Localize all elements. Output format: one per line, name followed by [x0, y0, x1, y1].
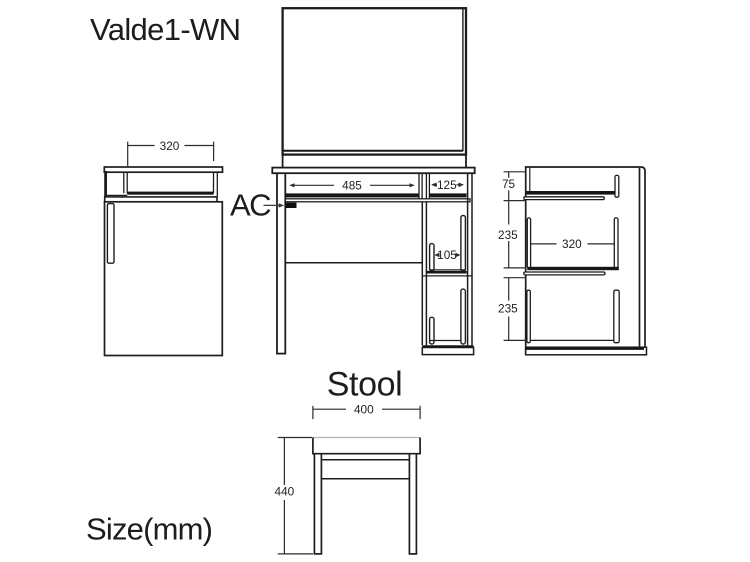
svg-text:125: 125	[437, 178, 457, 192]
svg-text:235: 235	[498, 302, 518, 316]
svg-text:400: 400	[354, 402, 374, 416]
svg-text:320: 320	[562, 237, 582, 251]
svg-text:440: 440	[275, 485, 295, 499]
svg-text:Size(mm): Size(mm)	[86, 512, 212, 547]
svg-text:235: 235	[498, 228, 518, 242]
svg-text:75: 75	[502, 177, 516, 191]
svg-text:320: 320	[160, 139, 180, 153]
svg-text:485: 485	[342, 178, 362, 192]
svg-text:Valde1-WN: Valde1-WN	[90, 12, 240, 47]
svg-text:Stool: Stool	[327, 366, 403, 404]
svg-text:105: 105	[437, 248, 457, 262]
